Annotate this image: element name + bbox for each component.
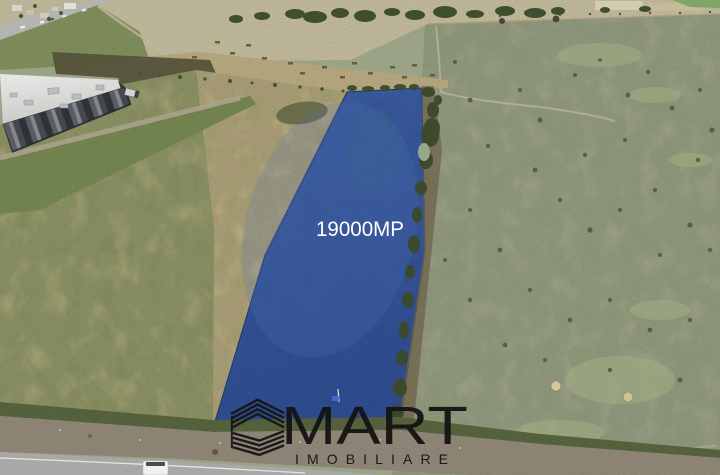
light-tree bbox=[418, 143, 430, 161]
aerial-photo: 19000MP MART IMOBILIARE bbox=[0, 0, 720, 475]
white-van bbox=[143, 461, 168, 475]
aerial-photo-canvas: 19000MP MART IMOBILIARE bbox=[0, 0, 720, 475]
watermark-brand: MART bbox=[281, 396, 468, 456]
area-label: 19000MP bbox=[316, 217, 404, 241]
